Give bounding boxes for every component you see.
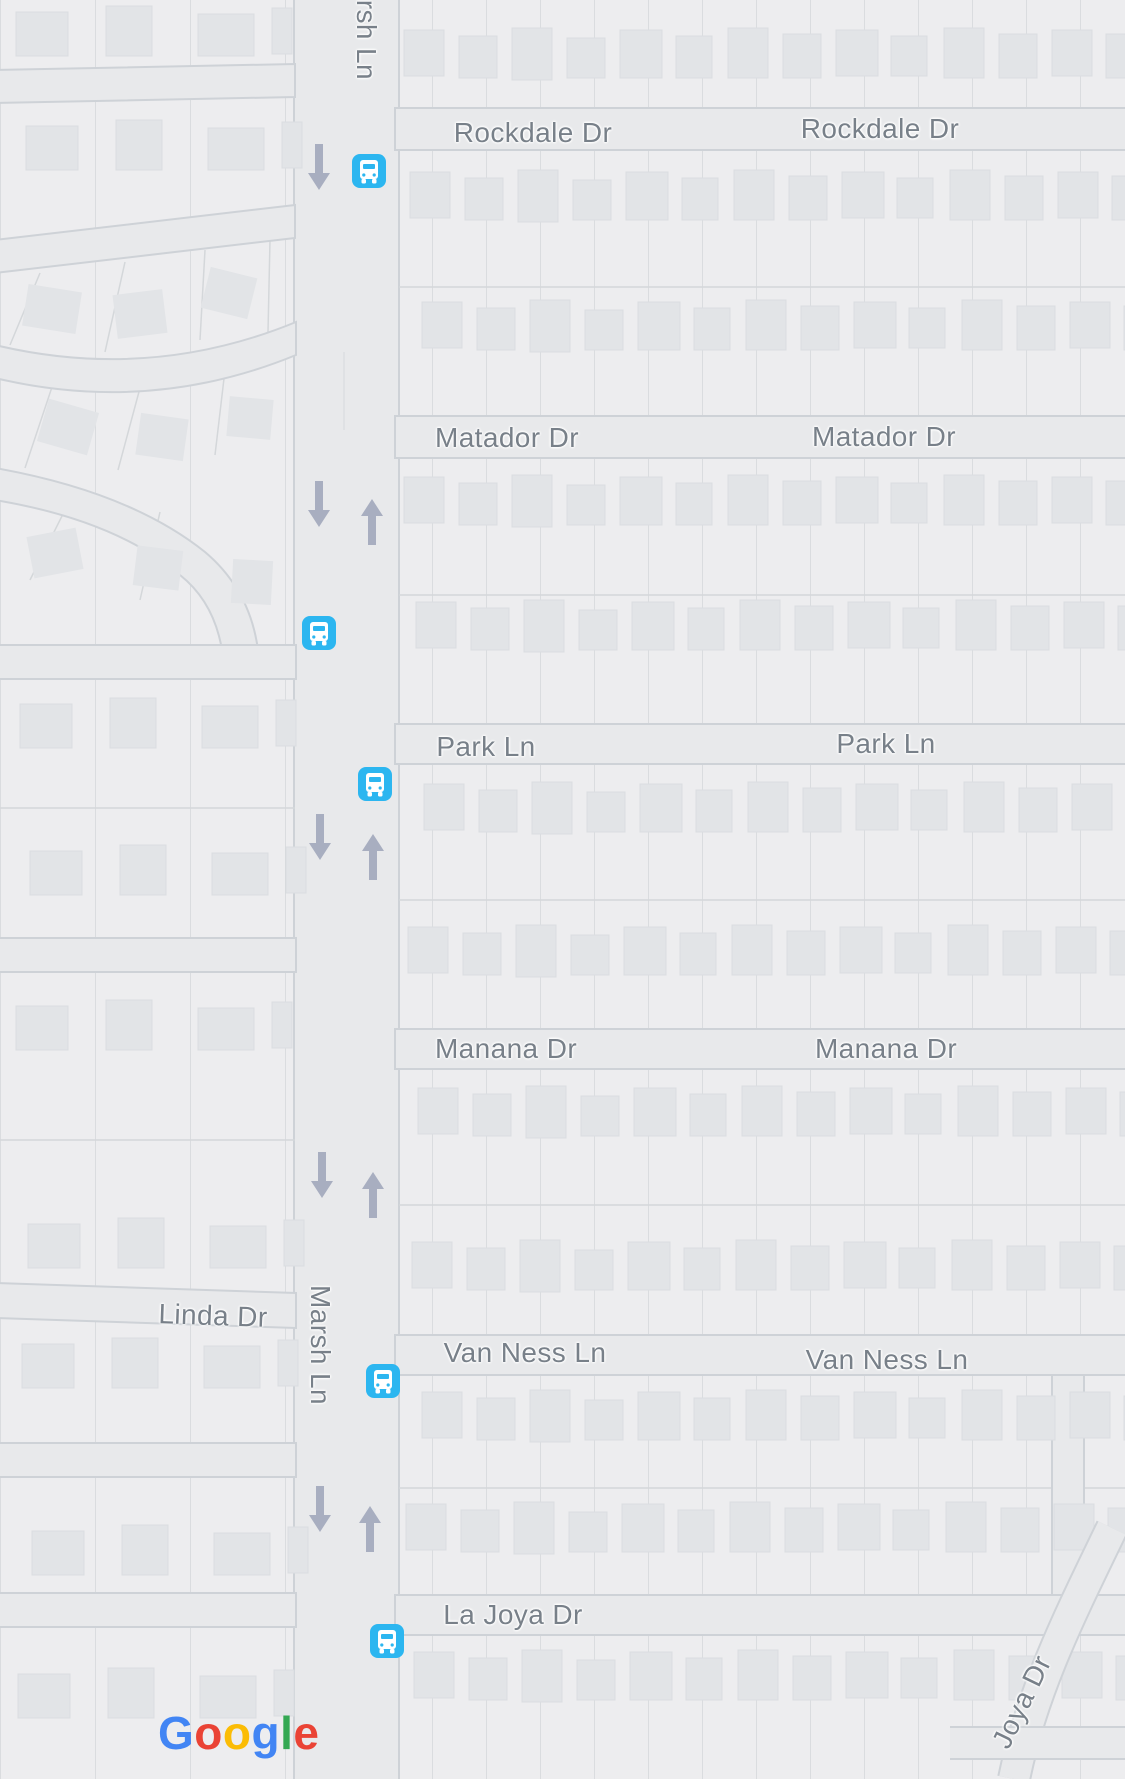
bus-stop-icon[interactable] bbox=[366, 1364, 400, 1398]
left-blocks bbox=[0, 0, 308, 1779]
google-logo-letter: G bbox=[158, 1706, 194, 1761]
one-way-arrow-down-icon bbox=[307, 481, 331, 527]
one-way-arrow-up-icon bbox=[358, 1506, 382, 1552]
one-way-arrow-down-icon bbox=[310, 1152, 334, 1198]
one-way-arrow-down-icon bbox=[308, 814, 332, 860]
bus-stop-icon[interactable] bbox=[370, 1624, 404, 1658]
google-logo-letter: e bbox=[293, 1706, 319, 1761]
street-label-matador-right: Matador Dr bbox=[812, 423, 956, 451]
street-label-park-left: Park Ln bbox=[436, 733, 535, 761]
street-label-manana-left: Manana Dr bbox=[435, 1035, 577, 1063]
street-label-la-joya: La Joya Dr bbox=[443, 1601, 582, 1629]
map-viewport[interactable]: Marsh Ln Rockdale Dr Rockdale Dr Matador… bbox=[0, 0, 1125, 1779]
street-label-manana-right: Manana Dr bbox=[815, 1035, 957, 1063]
street-label-matador-left: Matador Dr bbox=[435, 424, 579, 452]
bus-stop-icon[interactable] bbox=[302, 616, 336, 650]
map-canvas[interactable] bbox=[0, 0, 1125, 1779]
google-logo-letter: g bbox=[252, 1706, 281, 1761]
street-label-marsh-ln-top: Marsh Ln bbox=[352, 0, 380, 80]
street-label-park-right: Park Ln bbox=[836, 730, 935, 758]
street-label-rockdale-left: Rockdale Dr bbox=[454, 119, 612, 147]
one-way-arrow-down-icon bbox=[308, 1486, 332, 1532]
street-label-linda: Linda Dr bbox=[158, 1300, 268, 1332]
bus-stop-icon[interactable] bbox=[358, 767, 392, 801]
one-way-arrow-down-icon bbox=[307, 144, 331, 190]
google-logo-letter: l bbox=[280, 1706, 293, 1761]
one-way-arrow-up-icon bbox=[360, 499, 384, 545]
street-label-rockdale-right: Rockdale Dr bbox=[801, 115, 959, 143]
street-label-marsh-ln: Marsh Ln bbox=[306, 1285, 334, 1405]
street-label-van-ness-right: Van Ness Ln bbox=[806, 1346, 969, 1374]
google-logo-letter: o bbox=[194, 1706, 223, 1761]
street-label-van-ness-left: Van Ness Ln bbox=[444, 1339, 607, 1367]
one-way-arrow-up-icon bbox=[361, 1172, 385, 1218]
bus-stop-icon[interactable] bbox=[352, 154, 386, 188]
right-blocks bbox=[395, 0, 1125, 1779]
google-logo[interactable]: Google bbox=[158, 1706, 319, 1761]
google-logo-letter: o bbox=[223, 1706, 252, 1761]
one-way-arrow-up-icon bbox=[361, 834, 385, 880]
